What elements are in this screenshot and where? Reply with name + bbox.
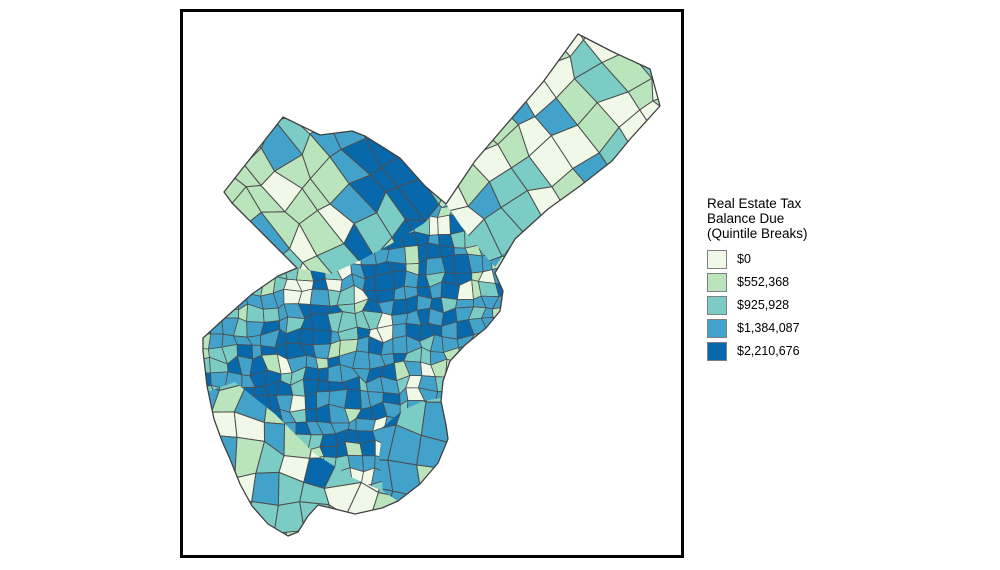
census-tract xyxy=(320,434,338,447)
census-tract xyxy=(211,412,237,438)
census-tract xyxy=(219,499,252,532)
legend-label: $1,384,087 xyxy=(737,319,800,338)
census-tract xyxy=(441,282,460,300)
census-tract xyxy=(313,330,332,345)
census-tract xyxy=(393,336,407,354)
legend-label: $0 xyxy=(737,250,751,269)
legend-swatch xyxy=(707,250,727,269)
census-tract xyxy=(273,264,287,280)
census-tract xyxy=(318,368,328,382)
census-tract xyxy=(306,409,317,422)
census-tract xyxy=(241,139,258,154)
census-tract xyxy=(292,107,307,123)
plot-frame xyxy=(180,9,684,558)
legend: Real Estate Tax Balance Due (Quintile Br… xyxy=(707,196,877,365)
census-tract xyxy=(515,238,533,256)
legend-label: $552,368 xyxy=(737,273,789,292)
census-tract xyxy=(571,12,599,40)
census-tract xyxy=(316,358,329,369)
census-tract xyxy=(303,367,319,381)
census-tract xyxy=(310,305,330,315)
census-tract xyxy=(356,418,376,431)
census-tract xyxy=(230,216,247,233)
census-tract xyxy=(316,119,332,134)
legend-swatch xyxy=(707,296,727,315)
census-tract xyxy=(640,101,681,146)
legend-label: $925,928 xyxy=(737,296,789,315)
legend-swatch xyxy=(707,342,727,361)
legend-item: $0 xyxy=(707,250,877,269)
legend-item: $552,368 xyxy=(707,273,877,292)
census-tract xyxy=(405,246,419,265)
census-tract xyxy=(310,289,330,306)
census-tract xyxy=(429,216,438,235)
legend-item: $1,384,087 xyxy=(707,319,877,338)
legend-swatch xyxy=(707,319,727,338)
census-tract xyxy=(345,390,362,410)
census-tract xyxy=(252,472,279,505)
census-tract xyxy=(463,150,475,165)
census-tract xyxy=(553,203,571,216)
census-tract xyxy=(417,465,455,501)
census-tract xyxy=(497,97,516,116)
census-tract xyxy=(220,295,239,310)
legend-items: $0$552,368$925,928$1,384,087$2,210,676 xyxy=(707,250,877,361)
census-tract xyxy=(438,215,451,235)
legend-item: $925,928 xyxy=(707,296,877,315)
census-tract xyxy=(214,453,229,468)
legend-swatch xyxy=(707,273,727,292)
census-tract xyxy=(387,247,406,264)
census-tract xyxy=(493,317,514,332)
census-tract xyxy=(417,435,455,470)
legend-item: $2,210,676 xyxy=(707,342,877,361)
census-tract xyxy=(392,299,408,315)
census-tract xyxy=(336,511,351,527)
legend-label: $2,210,676 xyxy=(737,342,800,361)
legend-title: Real Estate Tax Balance Due (Quintile Br… xyxy=(707,196,877,241)
census-tract xyxy=(265,111,278,127)
choropleth-map xyxy=(183,12,681,555)
census-tract xyxy=(299,328,313,345)
census-tract xyxy=(263,308,279,322)
